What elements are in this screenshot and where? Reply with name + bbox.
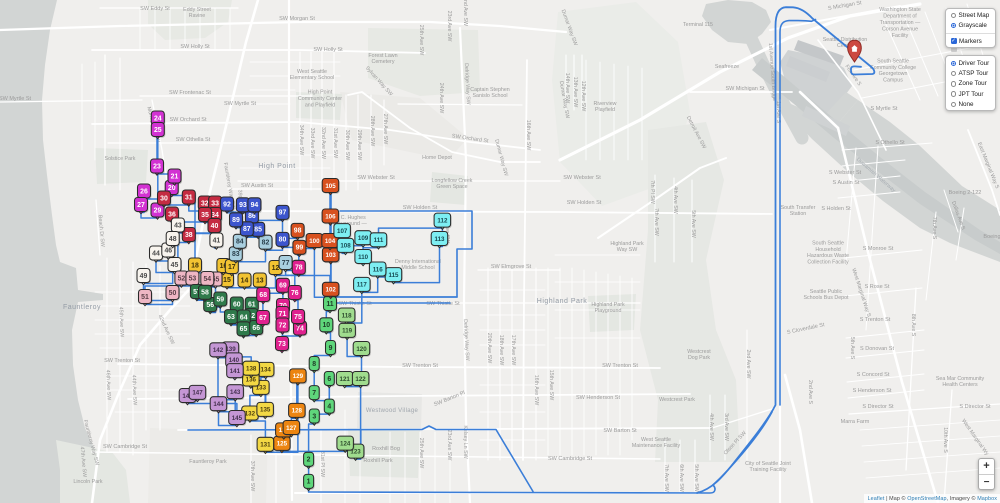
- svg-text:SW Webster St: SW Webster St: [357, 175, 395, 181]
- svg-text:76: 76: [291, 290, 299, 297]
- svg-text:South Seattle: South Seattle: [812, 240, 844, 246]
- svg-text:128: 128: [292, 408, 303, 415]
- svg-text:54: 54: [203, 276, 211, 283]
- svg-text:Washington State: Washington State: [879, 7, 921, 13]
- svg-text:S Othello St: S Othello St: [875, 140, 905, 146]
- svg-text:Fauntleroy Park: Fauntleroy Park: [189, 459, 227, 465]
- svg-text:30th Ave SW: 30th Ave SW: [344, 130, 350, 161]
- svg-text:8th Ave S: 8th Ave S: [910, 314, 916, 337]
- svg-text:5th Ave SW: 5th Ave SW: [693, 464, 699, 492]
- svg-text:22nd Ave SW: 22nd Ave SW: [462, 0, 468, 26]
- svg-text:84: 84: [236, 239, 244, 246]
- svg-text:58: 58: [201, 290, 209, 297]
- svg-text:41: 41: [213, 237, 221, 244]
- svg-text:63: 63: [227, 314, 235, 321]
- svg-text:27: 27: [137, 202, 145, 209]
- svg-text:S Holden St: S Holden St: [821, 206, 851, 212]
- svg-text:12th Ave SW: 12th Ave SW: [580, 81, 586, 112]
- svg-text:78: 78: [295, 265, 303, 272]
- svg-text:SW Trenton St: SW Trenton St: [104, 358, 140, 364]
- svg-text:98: 98: [294, 228, 302, 235]
- svg-text:SW Holden St: SW Holden St: [567, 200, 602, 206]
- svg-text:113: 113: [435, 236, 446, 243]
- svg-text:115: 115: [389, 272, 400, 279]
- svg-text:29: 29: [154, 207, 162, 214]
- svg-text:Ravine: Ravine: [189, 13, 206, 19]
- svg-text:17: 17: [228, 264, 236, 271]
- svg-text:72: 72: [279, 322, 287, 329]
- svg-text:23rd Ave SW: 23rd Ave SW: [446, 11, 452, 42]
- svg-text:46: 46: [164, 247, 172, 254]
- svg-text:13: 13: [256, 277, 264, 284]
- svg-text:Home Depot: Home Depot: [422, 155, 452, 161]
- svg-text:14: 14: [241, 277, 249, 284]
- svg-text:7th Ave SW: 7th Ave SW: [653, 208, 659, 236]
- svg-text:Schools Bus Depot: Schools Bus Depot: [803, 295, 849, 301]
- svg-text:Sanislo School: Sanislo School: [472, 93, 507, 99]
- svg-text:25th Ave SW: 25th Ave SW: [418, 25, 424, 56]
- svg-text:Cemetery: Cemetery: [372, 59, 395, 65]
- svg-text:29th Ave SW: 29th Ave SW: [356, 130, 362, 161]
- svg-text:Westwood Village: Westwood Village: [366, 408, 419, 414]
- svg-text:Marra Farm: Marra Farm: [841, 419, 870, 425]
- svg-text:7th Ave SW: 7th Ave SW: [663, 464, 669, 492]
- svg-text:SW Webster St: SW Webster St: [563, 175, 601, 181]
- svg-text:2: 2: [307, 457, 311, 464]
- svg-text:122: 122: [355, 376, 366, 383]
- svg-text:117: 117: [357, 282, 368, 289]
- svg-text:Green Space: Green Space: [436, 184, 467, 190]
- svg-text:SW Eddy St: SW Eddy St: [140, 6, 170, 12]
- svg-text:67: 67: [259, 315, 267, 322]
- svg-text:80: 80: [279, 237, 287, 244]
- svg-text:7th Pl SW: 7th Pl SW: [649, 180, 655, 204]
- svg-text:143: 143: [230, 389, 241, 396]
- svg-text:Georgetown: Georgetown: [879, 71, 908, 77]
- svg-text:Riverview: Riverview: [594, 101, 617, 107]
- svg-text:S Michigan St: S Michigan St: [828, 0, 863, 12]
- svg-text:34th Ave SW: 34th Ave SW: [298, 125, 304, 156]
- svg-text:SW Thistle St: SW Thistle St: [338, 301, 372, 307]
- svg-text:31st Pl SW: 31st Pl SW: [319, 451, 325, 477]
- svg-text:49: 49: [140, 273, 148, 280]
- svg-text:South Transfer: South Transfer: [781, 205, 816, 211]
- svg-text:3rd Ave SW: 3rd Ave SW: [723, 413, 729, 441]
- svg-text:64: 64: [240, 314, 248, 321]
- svg-text:Roxhill Bog: Roxhill Bog: [372, 446, 400, 452]
- svg-text:127: 127: [286, 425, 297, 432]
- svg-text:Station: Station: [790, 211, 807, 217]
- svg-text:108: 108: [340, 243, 351, 250]
- svg-text:5th Ave S: 5th Ave S: [849, 337, 855, 360]
- svg-text:75: 75: [294, 314, 302, 321]
- svg-text:SW Myrtle St: SW Myrtle St: [224, 101, 257, 107]
- svg-text:56: 56: [206, 302, 214, 309]
- svg-text:31st Ave SW: 31st Ave SW: [332, 128, 338, 158]
- svg-text:Collection Facility: Collection Facility: [807, 260, 849, 266]
- svg-text:Fauntleroy: Fauntleroy: [63, 304, 101, 311]
- svg-text:Department of: Department of: [883, 14, 917, 20]
- svg-text:135: 135: [260, 407, 271, 414]
- svg-text:28th Ave SW: 28th Ave SW: [369, 116, 375, 147]
- svg-text:Forest Lawn: Forest Lawn: [368, 53, 397, 59]
- svg-text:40: 40: [211, 223, 219, 230]
- svg-text:144: 144: [213, 401, 224, 408]
- svg-text:33: 33: [211, 200, 219, 207]
- svg-text:5th Ave SW: 5th Ave SW: [690, 210, 696, 238]
- svg-text:109: 109: [358, 235, 369, 242]
- svg-text:44th Ave SW: 44th Ave SW: [130, 375, 137, 406]
- svg-text:Solstice Park: Solstice Park: [105, 156, 136, 162]
- svg-text:Way SW: Way SW: [617, 247, 637, 253]
- svg-text:S Donovan St: S Donovan St: [860, 346, 894, 352]
- svg-text:107: 107: [337, 228, 348, 235]
- svg-text:32: 32: [201, 200, 209, 207]
- svg-text:93: 93: [239, 202, 247, 209]
- svg-text:4: 4: [327, 403, 331, 410]
- svg-text:129: 129: [293, 373, 304, 380]
- svg-text:S Webster St: S Webster St: [829, 170, 862, 176]
- svg-text:SW Cambridge St: SW Cambridge St: [103, 444, 147, 450]
- svg-text:South Seattle: South Seattle: [877, 58, 909, 64]
- svg-text:10: 10: [322, 322, 330, 329]
- svg-text:105: 105: [325, 183, 336, 190]
- svg-text:13th Ave SW: 13th Ave SW: [572, 77, 578, 108]
- svg-text:51: 51: [141, 294, 149, 301]
- svg-text:99: 99: [296, 245, 304, 252]
- svg-text:Delridge Way SW: Delridge Way SW: [462, 319, 470, 361]
- svg-text:Terminal 115: Terminal 115: [683, 22, 713, 28]
- svg-text:SW Henderson St: SW Henderson St: [576, 395, 620, 401]
- svg-text:141: 141: [230, 368, 241, 375]
- svg-text:121: 121: [340, 376, 351, 383]
- svg-text:Corson Avenue: Corson Avenue: [882, 26, 918, 32]
- svg-text:32nd Ave SW: 32nd Ave SW: [320, 127, 326, 159]
- svg-text:Westcrest Park: Westcrest Park: [659, 397, 695, 403]
- svg-text:1: 1: [307, 479, 311, 486]
- svg-text:SW Austin St: SW Austin St: [241, 183, 274, 189]
- svg-text:16th Ave SW: 16th Ave SW: [525, 120, 531, 151]
- svg-text:High Point: High Point: [258, 163, 295, 170]
- svg-text:7th Ave S: 7th Ave S: [931, 217, 937, 240]
- svg-text:82: 82: [262, 240, 270, 247]
- svg-text:Boeing: Boeing: [983, 234, 1000, 240]
- svg-text:18th Ave SW: 18th Ave SW: [498, 335, 504, 366]
- svg-text:83: 83: [232, 251, 240, 258]
- svg-text:Longfellow Creek: Longfellow Creek: [432, 178, 473, 184]
- svg-text:68: 68: [259, 292, 267, 299]
- svg-text:85: 85: [254, 227, 262, 234]
- svg-text:11: 11: [326, 301, 333, 308]
- svg-text:42nd Ave SW: 42nd Ave SW: [156, 314, 175, 346]
- svg-text:77: 77: [282, 260, 290, 267]
- svg-text:SW Cambridge St: SW Cambridge St: [548, 456, 592, 462]
- svg-text:Highland Park: Highland Park: [610, 241, 644, 247]
- svg-text:S Monroe St: S Monroe St: [863, 246, 894, 252]
- svg-text:S Director St: S Director St: [862, 404, 894, 410]
- svg-text:City of Seattle Joint: City of Seattle Joint: [745, 461, 791, 467]
- svg-text:124: 124: [340, 440, 351, 447]
- svg-text:S Director St: S Director St: [959, 404, 991, 410]
- svg-text:2nd Ave S: 2nd Ave S: [807, 380, 813, 405]
- svg-text:SW Elmgrove St: SW Elmgrove St: [491, 264, 532, 270]
- svg-text:Transportation —: Transportation —: [880, 20, 921, 26]
- svg-text:Community Center: Community Center: [298, 96, 342, 102]
- svg-text:97: 97: [279, 210, 287, 217]
- svg-text:94: 94: [251, 202, 259, 209]
- svg-text:Dog Park: Dog Park: [688, 355, 710, 361]
- svg-text:53: 53: [189, 275, 197, 282]
- svg-text:50: 50: [169, 290, 177, 297]
- svg-text:Sea Mar Community: Sea Mar Community: [936, 376, 985, 382]
- svg-text:Maintenance Facility: Maintenance Facility: [632, 443, 681, 449]
- svg-text:8: 8: [312, 361, 316, 368]
- svg-text:52: 52: [178, 275, 186, 282]
- svg-text:103: 103: [326, 252, 337, 259]
- svg-text:33rd Ave SW: 33rd Ave SW: [309, 128, 315, 159]
- svg-text:100: 100: [309, 238, 320, 245]
- svg-text:SW Trenton St: SW Trenton St: [602, 363, 638, 369]
- svg-text:116: 116: [373, 266, 384, 273]
- svg-text:45th Ave SW: 45th Ave SW: [117, 307, 124, 338]
- svg-text:145: 145: [232, 415, 243, 422]
- svg-text:S Austin St: S Austin St: [833, 180, 860, 186]
- svg-text:SW Holly St: SW Holly St: [313, 47, 343, 53]
- svg-text:26: 26: [140, 188, 148, 195]
- svg-text:West Seattle: West Seattle: [297, 69, 327, 75]
- svg-text:S Concord St: S Concord St: [857, 372, 890, 378]
- svg-text:SW Holden St: SW Holden St: [403, 205, 438, 211]
- svg-text:15: 15: [223, 277, 231, 284]
- svg-text:SW Michigan St: SW Michigan St: [725, 86, 765, 92]
- svg-text:Middle School: Middle School: [401, 265, 434, 271]
- svg-text:120: 120: [356, 346, 367, 353]
- svg-text:2nd Ave SW: 2nd Ave SW: [745, 349, 751, 378]
- svg-text:25: 25: [154, 127, 162, 134]
- svg-text:45: 45: [171, 262, 179, 269]
- svg-text:59: 59: [216, 296, 224, 303]
- svg-text:Westcrest: Westcrest: [687, 349, 711, 355]
- svg-text:Roxhill Park: Roxhill Park: [363, 458, 393, 464]
- svg-text:38: 38: [185, 232, 193, 239]
- svg-text:S Henderson St: S Henderson St: [853, 388, 892, 394]
- svg-text:74: 74: [296, 325, 304, 332]
- svg-text:Kelsey Ln SW: Kelsey Ln SW: [462, 425, 468, 458]
- svg-text:SW Orchard St: SW Orchard St: [170, 117, 207, 123]
- svg-text:West Marginal Wy: West Marginal Wy: [960, 418, 990, 457]
- svg-text:S Cloverdale St: S Cloverdale St: [786, 322, 825, 336]
- svg-text:36: 36: [168, 211, 176, 218]
- svg-text:Facility: Facility: [892, 33, 909, 39]
- svg-text:Denny International: Denny International: [395, 259, 441, 265]
- svg-text:SW Myrtle St: SW Myrtle St: [0, 96, 32, 102]
- svg-text:Captain Stephen: Captain Stephen: [470, 87, 510, 93]
- svg-text:Highland Park: Highland Park: [537, 298, 587, 305]
- svg-text:21: 21: [171, 173, 179, 180]
- svg-text:Training Facility: Training Facility: [750, 467, 787, 473]
- svg-text:SW Barton Pl: SW Barton Pl: [433, 390, 466, 408]
- svg-text:SW Othella St: SW Othella St: [176, 137, 211, 143]
- svg-text:110: 110: [358, 254, 369, 261]
- svg-text:Health Centers: Health Centers: [942, 382, 978, 388]
- svg-text:46th Ave SW: 46th Ave SW: [104, 370, 111, 401]
- svg-text:37th Ave SW: 37th Ave SW: [249, 461, 255, 492]
- svg-text:89: 89: [232, 217, 240, 224]
- svg-text:SW Barton St: SW Barton St: [603, 428, 637, 434]
- svg-text:92: 92: [223, 201, 231, 208]
- svg-text:Hazardous Waste: Hazardous Waste: [807, 253, 849, 259]
- svg-text:60: 60: [233, 301, 241, 308]
- svg-text:134: 134: [261, 367, 272, 374]
- svg-text:48: 48: [169, 236, 177, 243]
- svg-text:Community College: Community College: [870, 65, 916, 71]
- svg-text:104: 104: [325, 238, 336, 245]
- svg-text:S Rose St: S Rose St: [865, 284, 890, 290]
- svg-text:Campus: Campus: [883, 78, 903, 84]
- svg-text:4th Ave SW: 4th Ave SW: [672, 186, 678, 214]
- svg-text:High Point: High Point: [308, 90, 333, 96]
- svg-text:69: 69: [279, 283, 287, 290]
- svg-text:Household: Household: [815, 247, 840, 253]
- svg-text:23: 23: [153, 163, 161, 170]
- svg-text:25th Ave SW: 25th Ave SW: [418, 438, 424, 469]
- svg-text:6: 6: [327, 376, 331, 383]
- svg-text:16th Ave SW: 16th Ave SW: [533, 375, 539, 406]
- svg-text:31: 31: [185, 194, 193, 201]
- svg-text:4th Ave SW: 4th Ave SW: [708, 413, 714, 441]
- svg-text:Seattle Distribution: Seattle Distribution: [823, 37, 868, 43]
- svg-text:125: 125: [277, 441, 288, 448]
- svg-text:20th Ave SW: 20th Ave SW: [486, 333, 492, 364]
- svg-text:30: 30: [160, 195, 168, 202]
- svg-text:147: 147: [192, 390, 203, 397]
- svg-text:106: 106: [325, 213, 336, 220]
- svg-text:Playground: Playground: [595, 308, 622, 314]
- svg-text:112: 112: [437, 217, 448, 224]
- svg-text:Highland Park: Highland Park: [591, 302, 625, 308]
- svg-text:138: 138: [246, 366, 257, 373]
- svg-text:Lincoln Park: Lincoln Park: [73, 479, 102, 485]
- svg-text:and Playfield: and Playfield: [305, 102, 335, 108]
- svg-text:111: 111: [374, 237, 384, 244]
- svg-text:3: 3: [312, 413, 316, 420]
- svg-text:SW Trenton St: SW Trenton St: [402, 363, 438, 369]
- svg-text:71: 71: [279, 311, 287, 318]
- svg-text:66: 66: [252, 325, 260, 332]
- svg-text:SW Frontenac St: SW Frontenac St: [169, 90, 211, 96]
- svg-text:87: 87: [243, 226, 251, 233]
- svg-text:102: 102: [326, 287, 337, 294]
- svg-text:61: 61: [248, 302, 256, 309]
- svg-text:24: 24: [154, 115, 162, 122]
- svg-text:S Myrtle St: S Myrtle St: [871, 106, 898, 112]
- svg-text:118: 118: [342, 312, 353, 319]
- svg-text:27th Ave SW: 27th Ave SW: [382, 114, 388, 145]
- svg-text:6th Ave SW: 6th Ave SW: [678, 464, 684, 492]
- svg-text:Eddy Street: Eddy Street: [183, 7, 211, 13]
- svg-text:43: 43: [174, 222, 182, 229]
- svg-text:West Seattle: West Seattle: [641, 437, 671, 443]
- svg-text:Playfield: Playfield: [595, 107, 615, 113]
- svg-text:35: 35: [201, 212, 209, 219]
- svg-text:44: 44: [152, 250, 160, 257]
- svg-text:73: 73: [278, 341, 286, 348]
- svg-text:7: 7: [312, 390, 316, 397]
- svg-text:131: 131: [260, 442, 271, 449]
- svg-text:SW Holly St: SW Holly St: [180, 44, 210, 50]
- svg-text:Seafreeze: Seafreeze: [715, 64, 739, 70]
- svg-text:15th Ave SW: 15th Ave SW: [548, 370, 554, 401]
- svg-text:Boeing 2-122: Boeing 2-122: [949, 190, 982, 196]
- svg-text:East Marginal Way S: East Marginal Way S: [976, 142, 1000, 190]
- svg-text:Seattle Public: Seattle Public: [810, 289, 843, 295]
- svg-text:24th Ave SW: 24th Ave SW: [438, 83, 444, 114]
- svg-text:18: 18: [191, 262, 199, 269]
- svg-text:23rd Ave SW: 23rd Ave SW: [446, 430, 452, 461]
- svg-text:65: 65: [240, 326, 248, 333]
- svg-text:142: 142: [213, 347, 224, 354]
- svg-text:132: 132: [245, 410, 256, 417]
- svg-text:S Trenton St: S Trenton St: [860, 317, 891, 323]
- svg-text:119: 119: [342, 328, 353, 335]
- svg-text:10th Ave S: 10th Ave S: [942, 427, 948, 453]
- svg-text:9: 9: [329, 345, 333, 352]
- svg-text:Dumar Way SW: Dumar Way SW: [493, 139, 509, 177]
- svg-text:Elementary School: Elementary School: [290, 75, 334, 81]
- svg-text:17th Ave SW: 17th Ave SW: [510, 335, 516, 366]
- svg-text:SW Thistle St: SW Thistle St: [426, 301, 460, 307]
- svg-text:SW Morgan St: SW Morgan St: [279, 16, 315, 22]
- svg-text:12: 12: [272, 265, 280, 272]
